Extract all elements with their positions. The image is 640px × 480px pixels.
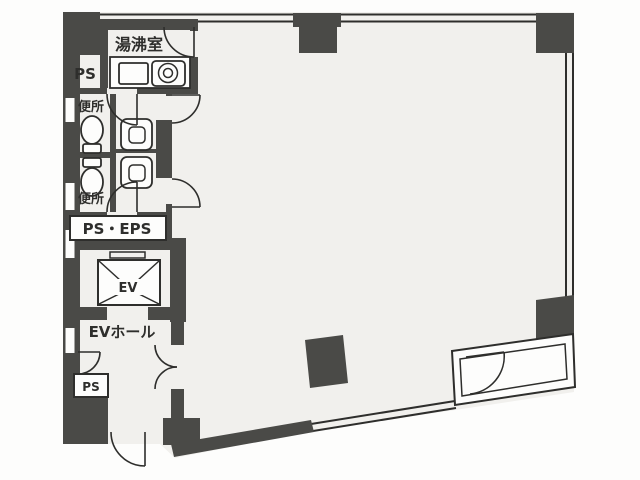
- kitchenette-west-wall: [100, 20, 108, 94]
- kitchenette-label: 湯沸室: [115, 35, 163, 54]
- sink-icon: [119, 63, 148, 84]
- kitchenette-counter: [110, 57, 190, 88]
- pillar-freestanding: [305, 335, 348, 388]
- toilet-bowl-icon: [81, 116, 103, 144]
- floor-plan-drawing: 湯沸室 PS 便所 便所 PS・EPS EV EVホール PS: [0, 0, 640, 480]
- stove-icon: [152, 61, 185, 86]
- stall-wall-stub-top: [166, 88, 172, 96]
- pillar-top-center-stem: [299, 13, 337, 53]
- ev-hall-right-wall-lower: [171, 389, 184, 420]
- ps-eps-label: PS・EPS: [83, 220, 152, 238]
- ps-bottom-label: PS: [82, 380, 99, 394]
- ev-hall-label: EVホール: [89, 323, 156, 341]
- ev-shaft-bottom-wall-left: [63, 307, 107, 320]
- elevator-car-icon: [98, 252, 160, 305]
- toilet-tank-icon: [83, 158, 101, 167]
- toilet-upper-label: 便所: [78, 99, 104, 115]
- floor-plan-page: 湯沸室 PS 便所 便所 PS・EPS EV EVホール PS: [0, 0, 640, 480]
- toilet-tank-icon: [83, 144, 101, 153]
- ps-top-label: PS: [74, 65, 96, 83]
- pillar-top-left: [63, 12, 100, 55]
- toilet-lower-fixture: [81, 158, 103, 196]
- ev-hall-right-wall-upper: [171, 322, 184, 345]
- toilet-upper-fixture: [81, 116, 103, 153]
- pillar-top-right: [536, 13, 574, 53]
- elevator-label: EV: [119, 281, 138, 296]
- ev-shaft-bottom-wall-right: [148, 307, 186, 320]
- stall-partition: [156, 120, 172, 178]
- toilet-lower-label: 便所: [78, 191, 104, 207]
- stall-wall-stub-bottom: [166, 204, 172, 212]
- hall-bottom-wall: [63, 430, 108, 444]
- kitchenette-top-wall: [100, 19, 190, 30]
- ps-bottom-block: [80, 397, 108, 432]
